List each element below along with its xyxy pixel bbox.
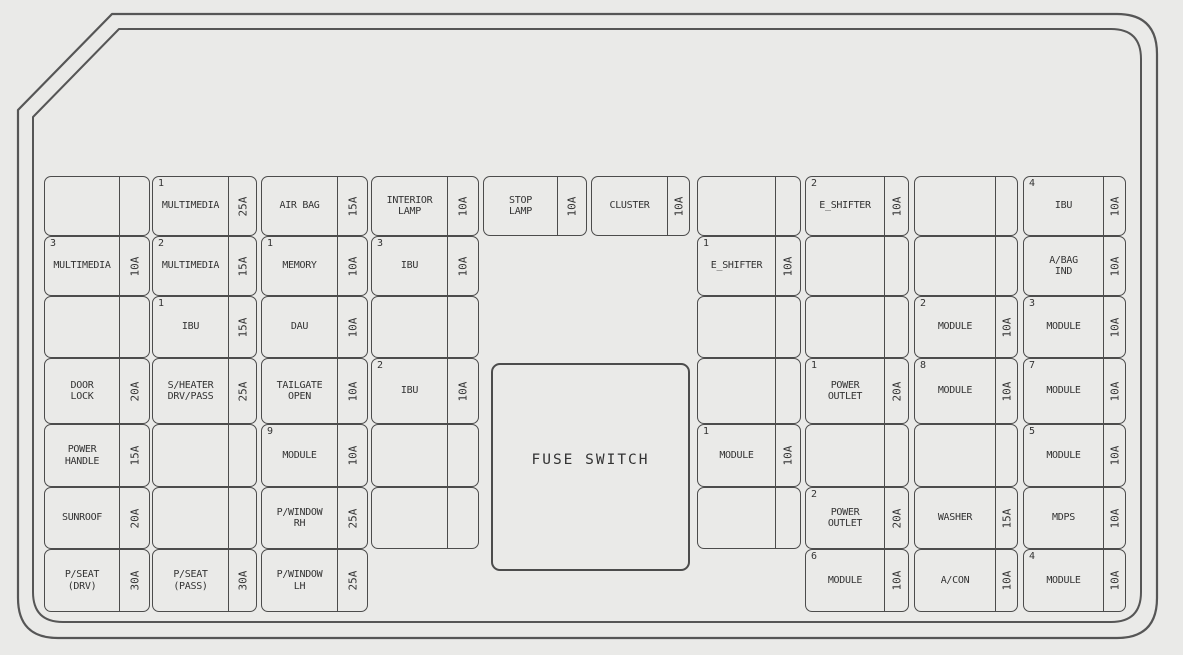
fuse-cell-empty — [152, 487, 257, 549]
fuse-index: 4 — [1029, 551, 1035, 562]
fuse-index: 1 — [158, 298, 164, 309]
fuse-cell: MEMORY110A — [261, 236, 368, 296]
fuse-amp-rating: 10A — [1000, 381, 1013, 401]
fuse-amp-column: 10A — [337, 425, 368, 486]
fuse-index: 6 — [811, 551, 817, 562]
fuse-label — [153, 425, 228, 486]
fuse-label: MODULE — [698, 425, 775, 486]
fuse-index: 2 — [920, 298, 926, 309]
fuse-amp-column: 10A — [447, 177, 479, 235]
fuse-cell: E_SHIFTER210A — [805, 176, 909, 236]
fuse-label — [372, 488, 447, 548]
fuse-amp-column: 20A — [884, 488, 909, 548]
fuse-amp-column: 10A — [884, 550, 909, 611]
fuse-label — [806, 297, 884, 357]
fuse-cell-empty — [805, 236, 909, 296]
fuse-label — [372, 297, 447, 357]
fuse-index: 1 — [703, 426, 709, 437]
fuse-amp-column: 15A — [337, 177, 368, 235]
fuse-cell: POWER HANDLE15A — [44, 424, 150, 487]
fuse-amp-column: 10A — [995, 550, 1018, 611]
fuse-cell-empty — [805, 296, 909, 358]
fuse-label: IBU — [372, 359, 447, 423]
fuse-amp-rating: 10A — [128, 256, 141, 276]
fuse-amp-column: 10A — [1103, 359, 1126, 423]
fuse-label: MULTIMEDIA — [45, 237, 119, 295]
fuse-cell: P/SEAT (DRV)30A — [44, 549, 150, 612]
fuse-label — [698, 177, 775, 235]
fuse-amp-rating: 20A — [890, 381, 903, 401]
fuse-amp-column: 10A — [447, 237, 479, 295]
fuse-cell-empty — [152, 424, 257, 487]
fuse-cell: MODULE610A — [805, 549, 909, 612]
fuse-index: 3 — [377, 238, 383, 249]
fuse-amp-column: 25A — [228, 177, 257, 235]
fuse-amp-rating: 10A — [890, 196, 903, 216]
fuse-amp-column: 15A — [228, 237, 257, 295]
fuse-label — [915, 177, 995, 235]
fuse-label: MODULE — [1024, 297, 1103, 357]
fuse-label: IBU — [1024, 177, 1103, 235]
fuse-amp-column — [775, 297, 801, 357]
fuse-amp-column: 20A — [119, 488, 150, 548]
fuse-amp-rating: 10A — [782, 256, 795, 276]
fuse-cell-empty — [914, 424, 1018, 487]
fuse-index: 2 — [811, 489, 817, 500]
fuse-amp-column: 10A — [667, 177, 690, 235]
fuse-cell: DAU10A — [261, 296, 368, 358]
fuse-amp-column: 20A — [884, 359, 909, 423]
fuse-cell: IBU115A — [152, 296, 257, 358]
fuse-amp-rating: 10A — [346, 381, 359, 401]
fuse-label: P/WINDOW RH — [262, 488, 337, 548]
fuse-label: SUNROOF — [45, 488, 119, 548]
fuse-cell: E_SHIFTER110A — [697, 236, 801, 296]
fuse-cell: P/WINDOW LH25A — [261, 549, 368, 612]
fuse-label: WASHER — [915, 488, 995, 548]
fuse-label: POWER OUTLET — [806, 359, 884, 423]
fuse-cell: SUNROOF20A — [44, 487, 150, 549]
fuse-amp-column — [775, 488, 801, 548]
fuse-index: 1 — [158, 178, 164, 189]
fuse-label: MODULE — [1024, 425, 1103, 486]
fuse-cell: A/BAG IND10A — [1023, 236, 1126, 296]
fuse-amp-rating: 10A — [1108, 256, 1121, 276]
fuse-cell: IBU410A — [1023, 176, 1126, 236]
fuse-label — [153, 488, 228, 548]
fuse-cell-empty — [697, 176, 801, 236]
fuse-index: 7 — [1029, 360, 1035, 371]
fuse-amp-column: 10A — [1103, 488, 1126, 548]
fuse-amp-rating: 10A — [1108, 446, 1121, 466]
fuse-amp-rating: 10A — [1108, 571, 1121, 591]
fuse-cell: IBU310A — [371, 236, 479, 296]
fuse-amp-rating: 10A — [457, 256, 470, 276]
fuse-amp-column: 30A — [119, 550, 150, 611]
fuse-cell: A/CON10A — [914, 549, 1018, 612]
fuse-label: MULTIMEDIA — [153, 237, 228, 295]
fuse-label: P/SEAT (DRV) — [45, 550, 119, 611]
fuse-amp-rating: 10A — [457, 196, 470, 216]
fuse-label: DOOR LOCK — [45, 359, 119, 423]
fuse-cell: MODULE910A — [261, 424, 368, 487]
fuse-amp-rating: 10A — [346, 256, 359, 276]
fuse-label: POWER OUTLET — [806, 488, 884, 548]
fuse-amp-rating: 10A — [1000, 317, 1013, 337]
fuse-amp-column: 10A — [1103, 177, 1126, 235]
fuse-label — [45, 297, 119, 357]
fuse-label: POWER HANDLE — [45, 425, 119, 486]
fuse-cell: POWER OUTLET220A — [805, 487, 909, 549]
fuse-amp-rating: 15A — [128, 446, 141, 466]
fuse-label: A/BAG IND — [1024, 237, 1103, 295]
fuse-cell: INTERIOR LAMP10A — [371, 176, 479, 236]
fuse-label: P/WINDOW LH — [262, 550, 337, 611]
fuse-amp-column: 15A — [119, 425, 150, 486]
fuse-amp-rating: 10A — [672, 196, 685, 216]
fuse-label: MODULE — [1024, 550, 1103, 611]
fuse-amp-column: 10A — [557, 177, 587, 235]
fuse-cell: MULTIMEDIA215A — [152, 236, 257, 296]
fuse-amp-column — [228, 488, 257, 548]
fuse-label — [698, 488, 775, 548]
fuse-amp-column — [995, 237, 1018, 295]
fuse-amp-rating: 10A — [566, 196, 579, 216]
fuse-label — [372, 425, 447, 486]
fuse-amp-column — [884, 425, 909, 486]
fuse-amp-rating: 10A — [890, 571, 903, 591]
fuse-amp-column: 10A — [119, 237, 150, 295]
fuse-label: MODULE — [915, 359, 995, 423]
fuse-cell-empty — [697, 296, 801, 358]
fuse-box-diagram: MULTIMEDIA125AAIR BAG15AINTERIOR LAMP10A… — [0, 0, 1183, 655]
fuse-label: IBU — [153, 297, 228, 357]
fuse-index: 1 — [811, 360, 817, 371]
fuse-index: 3 — [50, 238, 56, 249]
fuse-cell: MODULE210A — [914, 296, 1018, 358]
fuse-cell: MODULE310A — [1023, 296, 1126, 358]
fuse-amp-column — [447, 297, 479, 357]
fuse-amp-rating: 20A — [128, 381, 141, 401]
fuse-amp-rating: 15A — [236, 317, 249, 337]
fuse-cell-empty — [371, 487, 479, 549]
fuse-amp-rating: 10A — [782, 446, 795, 466]
fuse-cell: MODULE110A — [697, 424, 801, 487]
fuse-amp-rating: 15A — [236, 256, 249, 276]
fuse-cell: S/HEATER DRV/PASS25A — [152, 358, 257, 424]
fuse-cell: MODULE710A — [1023, 358, 1126, 424]
fuse-label: TAILGATE OPEN — [262, 359, 337, 423]
fuse-label: MODULE — [262, 425, 337, 486]
fuse-switch-label: FUSE SWITCH — [531, 452, 649, 468]
fuse-amp-column: 10A — [995, 359, 1018, 423]
fuse-label: E_SHIFTER — [698, 237, 775, 295]
fuse-label: E_SHIFTER — [806, 177, 884, 235]
fuse-cell: WASHER15A — [914, 487, 1018, 549]
fuse-cell: POWER OUTLET120A — [805, 358, 909, 424]
fuse-label: MODULE — [1024, 359, 1103, 423]
fuse-amp-column: 10A — [775, 425, 801, 486]
fuse-label: S/HEATER DRV/PASS — [153, 359, 228, 423]
fuse-amp-rating: 10A — [346, 446, 359, 466]
fuse-amp-column: 10A — [1103, 550, 1126, 611]
fuse-index: 1 — [267, 238, 273, 249]
fuse-cell-empty — [914, 176, 1018, 236]
fuse-cell: MDPS10A — [1023, 487, 1126, 549]
fuse-label: DAU — [262, 297, 337, 357]
fuse-amp-rating: 10A — [1108, 317, 1121, 337]
fuse-index: 4 — [1029, 178, 1035, 189]
fuse-amp-column: 10A — [995, 297, 1018, 357]
fuse-index: 2 — [158, 238, 164, 249]
fuse-amp-column: 30A — [228, 550, 257, 611]
fuse-cell-empty — [44, 176, 150, 236]
fuse-label: MULTIMEDIA — [153, 177, 228, 235]
fuse-cell-empty — [914, 236, 1018, 296]
fuse-index: 2 — [377, 360, 383, 371]
fuse-amp-rating: 25A — [346, 571, 359, 591]
fuse-amp-column: 10A — [337, 297, 368, 357]
fuse-label: AIR BAG — [262, 177, 337, 235]
fuse-amp-column: 10A — [1103, 425, 1126, 486]
fuse-amp-column — [447, 425, 479, 486]
fuse-amp-column: 15A — [995, 488, 1018, 548]
fuse-amp-column — [995, 425, 1018, 486]
fuse-amp-rating: 25A — [346, 508, 359, 528]
fuse-cell: P/WINDOW RH25A — [261, 487, 368, 549]
fuse-label — [915, 425, 995, 486]
fuse-label: A/CON — [915, 550, 995, 611]
fuse-amp-rating: 20A — [890, 508, 903, 528]
fuse-amp-column — [884, 297, 909, 357]
fuse-amp-column: 10A — [1103, 297, 1126, 357]
fuse-amp-rating: 10A — [1108, 508, 1121, 528]
fuse-cell: IBU210A — [371, 358, 479, 424]
fuse-amp-column — [228, 425, 257, 486]
fuse-index: 2 — [811, 178, 817, 189]
fuse-cell: MULTIMEDIA125A — [152, 176, 257, 236]
fuse-amp-rating: 10A — [1000, 571, 1013, 591]
fuse-cell-empty — [371, 424, 479, 487]
fuse-amp-rating: 30A — [236, 571, 249, 591]
fuse-amp-column: 10A — [775, 237, 801, 295]
fuse-amp-column: 20A — [119, 359, 150, 423]
fuse-index: 3 — [1029, 298, 1035, 309]
fuse-label: IBU — [372, 237, 447, 295]
fuse-amp-rating: 10A — [346, 317, 359, 337]
fuse-amp-column — [884, 237, 909, 295]
fuse-amp-column: 10A — [337, 237, 368, 295]
fuse-amp-column — [119, 297, 150, 357]
fuse-label — [806, 425, 884, 486]
fuse-amp-rating: 15A — [1000, 508, 1013, 528]
fuse-cell: TAILGATE OPEN10A — [261, 358, 368, 424]
fuse-amp-column: 10A — [1103, 237, 1126, 295]
fuse-amp-column: 25A — [228, 359, 257, 423]
fuse-label: MDPS — [1024, 488, 1103, 548]
fuse-amp-rating: 10A — [457, 381, 470, 401]
fuse-amp-rating: 30A — [128, 571, 141, 591]
fuse-index: 8 — [920, 360, 926, 371]
fuse-amp-column: 25A — [337, 488, 368, 548]
fuse-cell-empty — [371, 296, 479, 358]
fuse-amp-column: 10A — [447, 359, 479, 423]
fuse-cell: MODULE810A — [914, 358, 1018, 424]
fuse-amp-column — [775, 177, 801, 235]
fuse-amp-rating: 20A — [128, 508, 141, 528]
fuse-amp-column: 10A — [884, 177, 909, 235]
fuse-amp-column — [119, 177, 150, 235]
fuse-index: 1 — [703, 238, 709, 249]
fuse-cell-empty — [697, 487, 801, 549]
fuse-amp-column — [447, 488, 479, 548]
fuse-label: STOP LAMP — [484, 177, 557, 235]
fuse-cell-empty — [805, 424, 909, 487]
fuse-label: INTERIOR LAMP — [372, 177, 447, 235]
fuse-label — [915, 237, 995, 295]
fuse-label — [45, 177, 119, 235]
fuse-label — [806, 237, 884, 295]
fuse-cell: STOP LAMP10A — [483, 176, 587, 236]
fuse-amp-column: 25A — [337, 550, 368, 611]
fuse-amp-column — [775, 359, 801, 423]
fuse-label: MEMORY — [262, 237, 337, 295]
fuse-label: P/SEAT (PASS) — [153, 550, 228, 611]
fuse-label — [698, 297, 775, 357]
fuse-amp-rating: 10A — [1108, 381, 1121, 401]
fuse-cell: AIR BAG15A — [261, 176, 368, 236]
fuse-cell-empty — [697, 358, 801, 424]
fuse-index: 9 — [267, 426, 273, 437]
fuse-amp-column: 10A — [337, 359, 368, 423]
fuse-label — [698, 359, 775, 423]
fuse-label: CLUSTER — [592, 177, 667, 235]
fuse-cell-empty — [44, 296, 150, 358]
fuse-label: MODULE — [915, 297, 995, 357]
fuse-switch-box: FUSE SWITCH — [491, 363, 690, 571]
fuse-amp-rating: 25A — [236, 196, 249, 216]
fuse-label: MODULE — [806, 550, 884, 611]
fuse-amp-rating: 25A — [236, 381, 249, 401]
fuse-index: 5 — [1029, 426, 1035, 437]
fuse-cell: MULTIMEDIA310A — [44, 236, 150, 296]
fuse-cell: MODULE410A — [1023, 549, 1126, 612]
fuse-amp-rating: 15A — [346, 196, 359, 216]
fuse-amp-column: 15A — [228, 297, 257, 357]
fuse-cell: CLUSTER10A — [591, 176, 690, 236]
fuse-cell: MODULE510A — [1023, 424, 1126, 487]
fuse-amp-rating: 10A — [1108, 196, 1121, 216]
fuse-amp-column — [995, 177, 1018, 235]
fuse-cell: DOOR LOCK20A — [44, 358, 150, 424]
fuse-cell: P/SEAT (PASS)30A — [152, 549, 257, 612]
